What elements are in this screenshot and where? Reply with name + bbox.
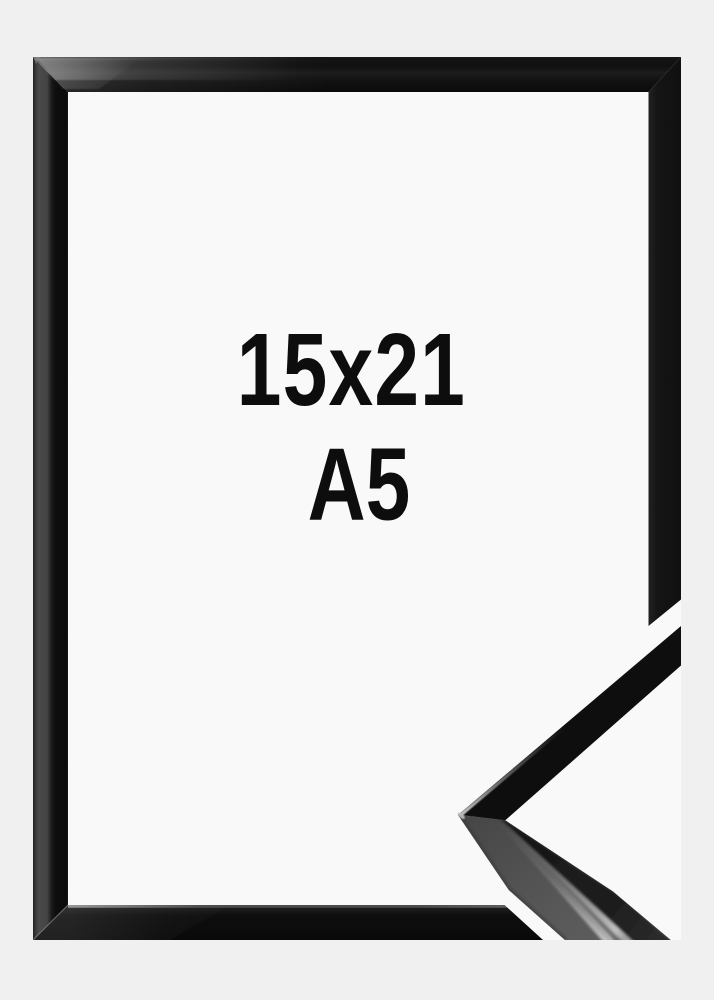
svg-text:15x21: 15x21 (237, 311, 466, 427)
svg-text:A5: A5 (308, 426, 411, 542)
